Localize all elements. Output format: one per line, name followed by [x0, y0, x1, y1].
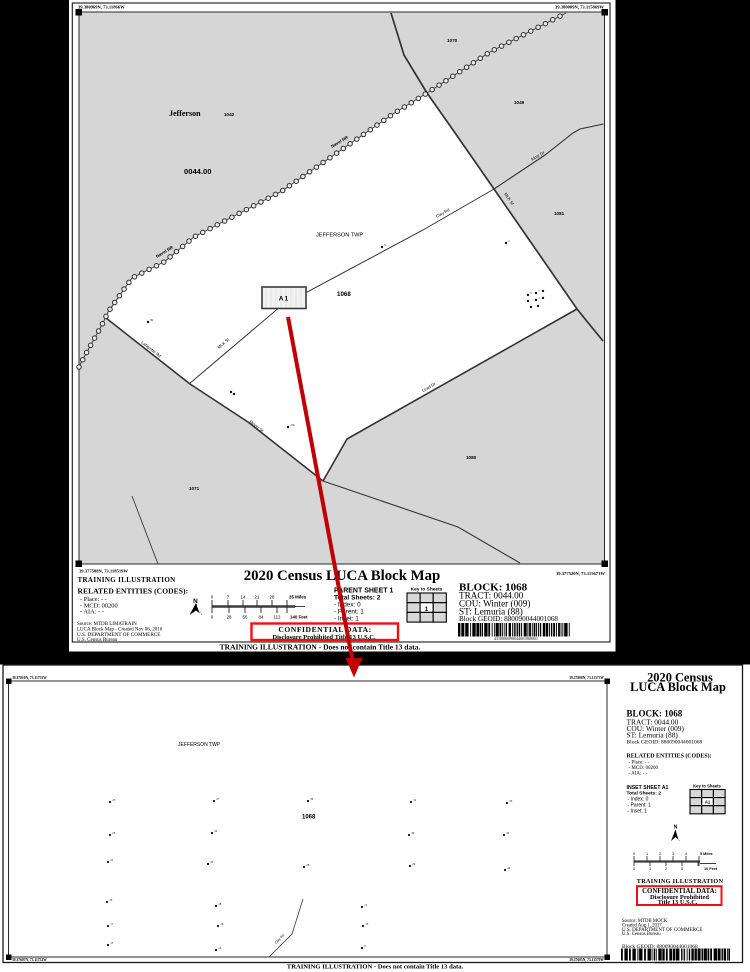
svg-text:1080: 1080 — [466, 455, 477, 460]
svg-text:Block GEOID: 880090044001068: Block GEOID: 880090044001068 — [459, 615, 558, 623]
svg-text:0: 0 — [633, 852, 635, 856]
svg-text:N: N — [674, 825, 678, 831]
svg-text:10 Feet: 10 Feet — [704, 867, 718, 871]
svg-text:RELATED ENTITIES (CODES):: RELATED ENTITIES (CODES): — [78, 587, 189, 596]
svg-text:- Parent: 1: - Parent: 1 — [334, 609, 364, 616]
svg-text:1068: 1068 — [337, 291, 351, 298]
svg-text:TRAINING ILLUSTRATION - Does n: TRAINING ILLUSTRATION - Does not contain… — [287, 964, 464, 971]
svg-text:39.37605N, 73.11570W: 39.37605N, 73.11570W — [569, 958, 604, 962]
svg-text:32: 32 — [506, 831, 510, 835]
svg-text:21: 21 — [110, 858, 114, 862]
svg-text:27: 27 — [216, 797, 220, 801]
svg-text:RELATED ENTITIES (CODES):: RELATED ENTITIES (CODES): — [627, 753, 712, 760]
svg-text:1068: 1068 — [302, 815, 316, 821]
svg-text:U.S. Census Bureau: U.S. Census Bureau — [622, 932, 661, 937]
svg-text:JEFFERSON TWP: JEFFERSON TWP — [316, 233, 363, 239]
svg-text:20: 20 — [210, 860, 214, 864]
svg-text:22: 22 — [214, 829, 218, 833]
svg-text:1042: 1042 — [224, 112, 235, 117]
svg-text:Block GEOID: 880090044001068: Block GEOID: 880090044001068 — [627, 740, 703, 746]
svg-text:35 Miles: 35 Miles — [289, 595, 307, 600]
svg-text:18: 18 — [218, 902, 222, 906]
svg-text:28: 28 — [270, 595, 275, 600]
svg-text:LUCA Block Map: LUCA Block Map — [630, 680, 726, 694]
svg-text:0044.00: 0044.00 — [184, 167, 211, 176]
svg-text:U.S. Census Bureau: U.S. Census Bureau — [77, 638, 118, 643]
svg-text:31: 31 — [413, 798, 417, 802]
svg-text:TRAINING ILLUSTRATION: TRAINING ILLUSTRATION — [637, 878, 724, 885]
svg-text:5 Miles: 5 Miles — [700, 852, 713, 856]
svg-text:- AIA: - -: - AIA: - - — [80, 609, 104, 616]
svg-text:39.377520N, 73.115673W: 39.377520N, 73.115673W — [556, 571, 605, 576]
svg-text:156: 156 — [290, 424, 295, 427]
svg-text:28: 28 — [227, 615, 232, 620]
svg-text:1070: 1070 — [447, 38, 458, 43]
svg-text:5: 5 — [681, 867, 683, 871]
svg-text:Key to Sheets: Key to Sheets — [411, 587, 443, 593]
svg-text:24: 24 — [507, 866, 511, 870]
svg-text:19: 19 — [109, 898, 113, 902]
svg-text:1081: 1081 — [554, 211, 565, 216]
svg-text:JEFFERSON TWP: JEFFERSON TWP — [178, 742, 221, 748]
svg-text:INSET SHEET A1: INSET SHEET A1 — [627, 785, 669, 791]
svg-text:2: 2 — [665, 867, 667, 871]
svg-text:29: 29 — [310, 797, 314, 801]
svg-text:14: 14 — [241, 595, 246, 600]
svg-text:Jefferson: Jefferson — [169, 109, 201, 118]
svg-text:- Index: 0: - Index: 0 — [334, 602, 361, 609]
svg-text:15: 15 — [110, 941, 114, 945]
svg-text:112: 112 — [274, 615, 282, 620]
svg-text:- AIA: - -: - AIA: - - — [629, 772, 648, 777]
svg-text:1071: 1071 — [189, 486, 200, 491]
svg-text:16: 16 — [220, 922, 224, 926]
svg-text:2020 Census LUCA Block Map: 2020 Census LUCA Block Map — [244, 568, 441, 584]
svg-text:- Inset: 1: - Inset: 1 — [628, 809, 648, 815]
svg-text:39.380969N, 73.11866W: 39.380969N, 73.11866W — [78, 5, 125, 10]
svg-text:1: 1 — [646, 852, 648, 856]
svg-text:33: 33 — [509, 799, 513, 803]
svg-text:PARENT SHEET 1: PARENT SHEET 1 — [334, 588, 393, 595]
svg-text:28: 28 — [306, 863, 310, 867]
svg-text:11: 11 — [364, 903, 367, 907]
svg-text:39.37810N, 73.11755W: 39.37810N, 73.11755W — [12, 676, 47, 680]
svg-text:- MCD: 00200: - MCD: 00200 — [629, 766, 659, 771]
svg-text:Title 13 U.S.C.: Title 13 U.S.C. — [658, 899, 698, 906]
svg-text:23: 23 — [112, 831, 116, 835]
svg-text:Key to Sheets: Key to Sheets — [693, 784, 721, 789]
svg-text:·: · — [233, 389, 234, 392]
svg-text:10: 10 — [365, 922, 369, 926]
svg-text:4: 4 — [685, 852, 687, 856]
svg-text:Disclosure Prohibited Title 13: Disclosure Prohibited Title 13 U.S.C. — [272, 634, 376, 641]
svg-text:3: 3 — [672, 852, 674, 856]
svg-text:84: 84 — [259, 615, 264, 620]
svg-text:30: 30 — [411, 831, 415, 835]
svg-text:ST: Lemuria (88): ST: Lemuria (88) — [627, 731, 679, 740]
svg-text:4318880090044001068001: 4318880090044001068001 — [494, 636, 538, 641]
svg-text:56: 56 — [243, 615, 248, 620]
svg-text:TRAINING ILLUSTRATION: TRAINING ILLUSTRATION — [78, 576, 176, 584]
svg-text:21: 21 — [255, 595, 260, 600]
svg-text:39.37808N, 73.11573W: 39.37808N, 73.11573W — [569, 676, 604, 680]
svg-text:25: 25 — [112, 798, 116, 802]
svg-text:140 Feet: 140 Feet — [290, 615, 308, 620]
svg-text:17: 17 — [110, 922, 114, 926]
svg-text:39.380009N, 73.115869W: 39.380009N, 73.115869W — [555, 5, 604, 10]
svg-text:39.37607N, 73.11752W: 39.37607N, 73.11752W — [12, 958, 47, 962]
svg-text:CONFIDENTIAL DATA:: CONFIDENTIAL DATA: — [278, 625, 371, 634]
svg-text:2: 2 — [659, 852, 661, 856]
svg-text:39.377588N, 73.118519W: 39.377588N, 73.118519W — [79, 569, 128, 574]
svg-text:14: 14 — [218, 946, 222, 950]
svg-text:26: 26 — [412, 862, 416, 866]
svg-text:TRAINING ILLUSTRATION - Does n: TRAINING ILLUSTRATION - Does not contain… — [220, 643, 421, 652]
svg-text:0: 0 — [633, 867, 635, 871]
svg-text:A1: A1 — [279, 296, 289, 303]
svg-text:A1: A1 — [705, 800, 711, 805]
svg-text:4318880090044001068A01: 4318880090044001068A01 — [654, 961, 692, 965]
svg-text:Source: MTDB LIMATRAIN: Source: MTDB LIMATRAIN — [77, 622, 137, 627]
svg-text:- Place: - -: - Place: - - — [629, 761, 650, 766]
svg-text:1: 1 — [649, 867, 651, 871]
svg-text:1049: 1049 — [514, 100, 525, 105]
